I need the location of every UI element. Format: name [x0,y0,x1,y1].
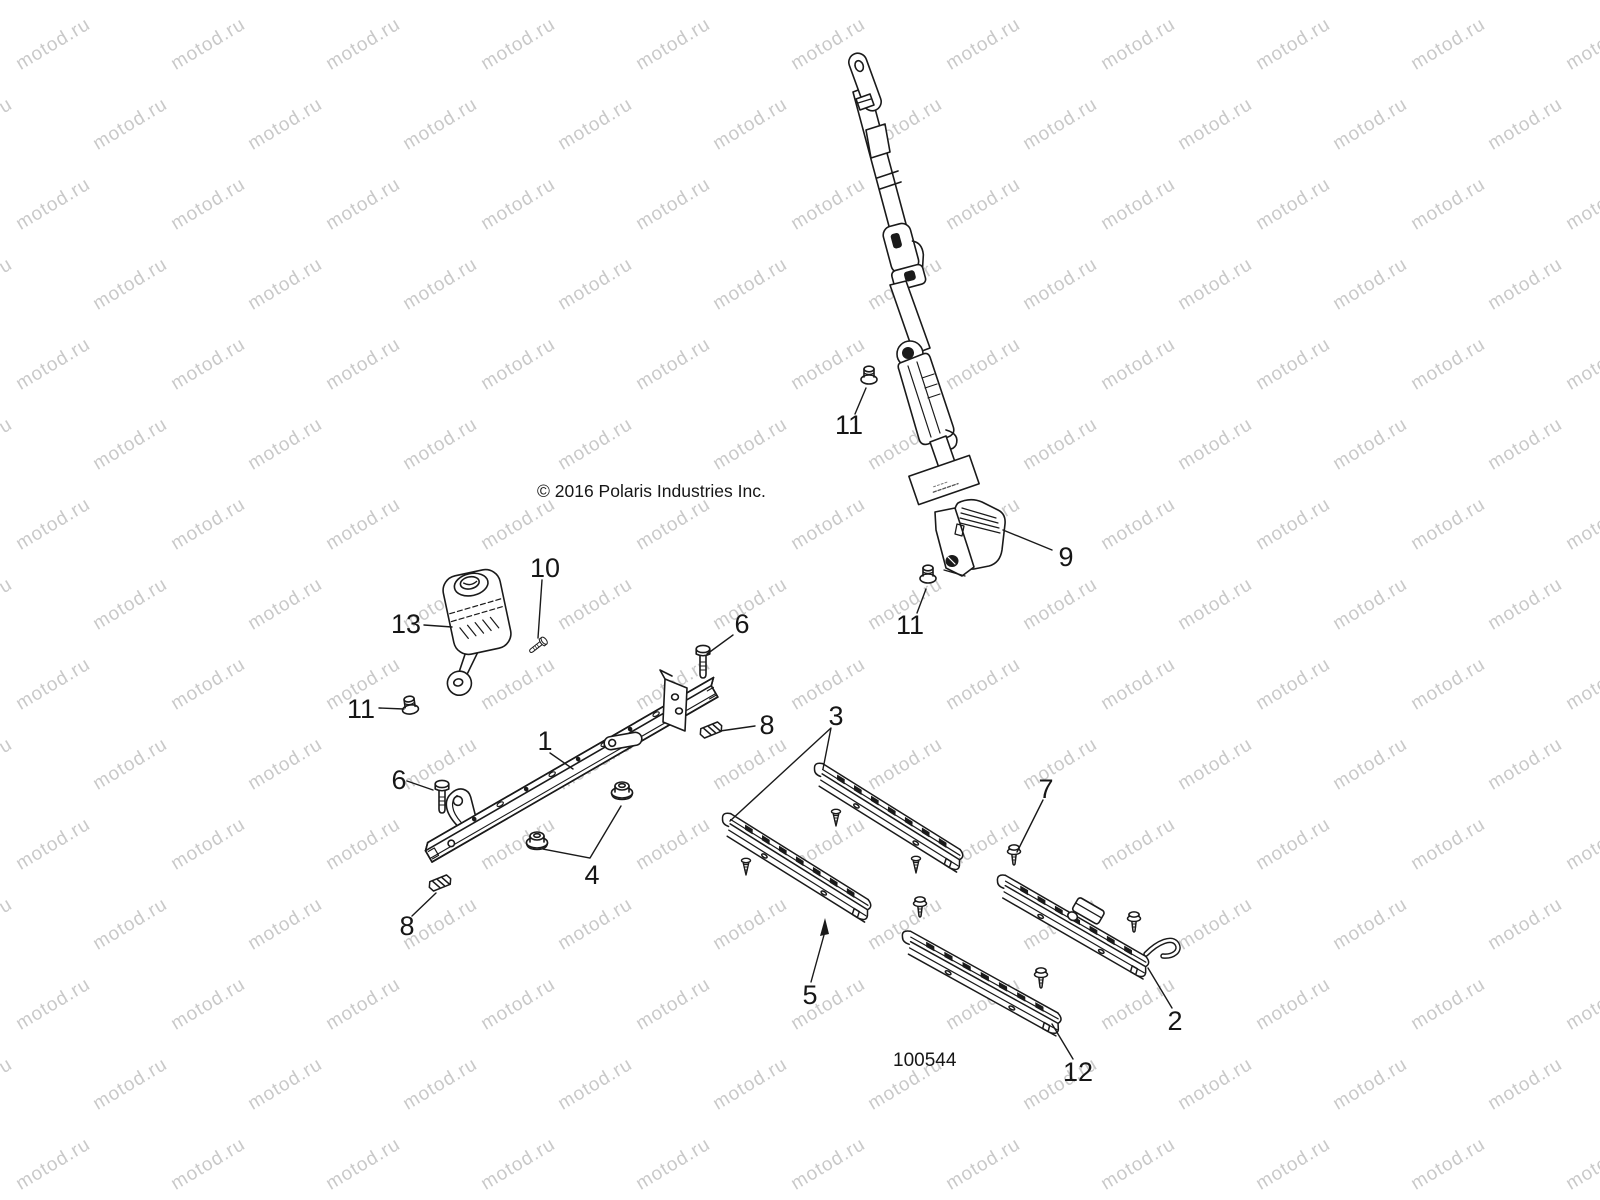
rail-3-right [807,761,969,873]
callout-6-upper: 6 [734,609,749,639]
screw-dart-b [742,858,751,875]
callout-13: 13 [391,609,421,639]
callout-12: 12 [1063,1057,1093,1087]
copyright-notice: © 2016 Polaris Industries Inc. [537,481,766,501]
rail-2 [990,873,1154,980]
callout-9: 9 [1058,542,1073,572]
tube-end-bracket [660,670,687,731]
callout-6-lower: 6 [391,765,406,795]
callout-11-right: 11 [896,610,924,640]
callout-8-left: 8 [399,911,414,941]
callout-7: 7 [1038,774,1053,804]
callout-labels: 13 10 11 6 6 1 8 8 4 3 5 7 2 12 9 11 11 [347,410,1183,1087]
callout-2: 2 [1167,1006,1182,1036]
buckle-assembly [426,567,522,698]
figure-number: 100544 [893,1050,957,1071]
callout-5: 5 [802,980,817,1010]
page: { "watermark": { "text": "motod.ru", "co… [0,0,1600,1200]
nut-4-a [527,832,548,850]
bolt-6-upper [696,645,710,678]
leader-lines [379,388,1172,1059]
callout-3: 3 [828,701,843,731]
screw-hex-d [914,897,927,917]
screw-hex-c [1035,968,1048,988]
arrowhead-5 [820,918,829,936]
nut-11-left [401,695,419,715]
callout-11-mid: 11 [835,410,863,440]
retractor-housing [935,500,1005,576]
screw-dart-a [832,809,841,826]
callout-10: 10 [530,553,560,583]
rail-3-left [715,811,877,923]
callout-1: 1 [537,726,552,756]
callout-8-right: 8 [759,710,774,740]
tube-mount-tab [603,731,643,750]
nut-11-right [920,565,936,583]
seat-belt-assembly [846,51,1005,576]
clip-8-right [698,721,723,739]
nut-4-b [612,782,633,800]
bolt-10 [527,636,548,655]
clip-8-left [427,874,452,892]
exploded-parts-diagram: 13 10 11 6 6 1 8 8 4 3 5 7 2 12 9 11 11 … [0,0,1600,1200]
screw-dart-c [912,856,921,873]
nut-11-mid [861,366,877,384]
callout-4: 4 [584,860,599,890]
callout-11-left: 11 [347,694,375,724]
screw-hex-b [1128,912,1141,932]
